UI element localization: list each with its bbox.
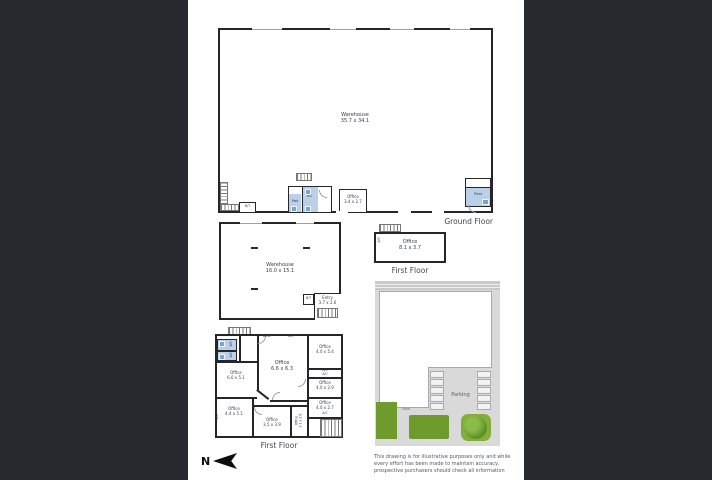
roller-door-line [296,223,314,224]
office-6-6-label: Office 6.6 x 6.3 [259,360,305,372]
toilet-fixture [305,206,311,212]
interior-wall [270,400,307,402]
interior-wall [215,361,257,363]
floorplan-image: Warehouse 35.7 x 34.1 B/T Pwd WC Office … [188,0,524,480]
warehouse-label: Warehouse 35.7 x 34.1 [300,112,410,124]
parking-bay [477,395,491,402]
column-mark [251,288,258,290]
door-gap [336,211,348,214]
powder-label: Pwd [289,200,301,204]
first-floor-label-left: First Floor [215,441,343,450]
parking-bay [430,387,444,394]
stairs [379,224,401,232]
office-dims: 4.0 x 5.4 [308,350,342,355]
parking-label: Parking [444,392,477,398]
column-mark [303,247,310,249]
wc-label: WC [302,195,317,199]
bt-label: B/T [303,297,314,301]
disclaimer-line: prospective purchasers should check all … [374,468,514,475]
interior-wall [239,334,241,362]
entry-label: Entry 3.7 x 2.6 [314,296,341,306]
stairs [320,419,342,437]
stairs [220,204,239,211]
wc-label: WC [230,340,234,348]
desk-label: Desk [258,335,276,339]
office-dims: 6.6 x 6.3 [259,366,305,372]
office-dims: 4.4 x 5.1 [216,412,252,417]
interior-wall [215,397,257,399]
parking-bay [430,379,444,386]
office-dims: 8.1 x 3.7 [380,245,440,251]
office-5-4-label: Office 4.0 x 5.4 [308,345,342,355]
ground-floor-label: Ground Floor [420,217,493,226]
entry-dims: 3.7 x 2.6 [314,301,341,306]
parking-bay [430,371,444,378]
office-dims: 3.4 x 2.7 [339,200,367,205]
ac-labels: A/C A/C [308,369,342,376]
office-dims: 3.5 x 3.9 [254,423,290,428]
tree [464,416,487,439]
roller-door-line [252,29,282,30]
disclaimer-line: This drawing is for illustrative purpose… [374,454,514,461]
door-gap [398,211,411,214]
parking-bay [477,403,491,410]
wc-divider-wall [217,350,237,352]
ac-label: A/C [308,373,342,377]
plant-fixture [482,199,489,205]
parking-bay [477,387,491,394]
crossover-line [375,287,500,288]
shed-label: Shed [398,408,414,412]
parking-bay [430,395,444,402]
roller-door-line [390,29,414,30]
office-gf-label: Office 3.4 x 2.7 [339,195,367,205]
toilet-fixture [219,354,225,360]
office-4-4-label: Office 4.4 x 5.1 [216,407,252,417]
crossover-line [375,284,500,285]
parking-bay [477,371,491,378]
door-gap [432,211,444,214]
stairs [317,308,338,318]
office-dims: 6.0 x 5.1 [217,376,255,381]
parking-bay [477,379,491,386]
north-label: N [201,455,210,468]
ac-label: A/C [284,335,298,339]
letterbox-right [524,0,712,480]
garden-bed [376,402,397,439]
site-plan: Parking Shed [375,281,500,446]
mid-warehouse-label: Warehouse 16.0 x 15.1 [244,262,316,274]
office-6-0-label: Office 6.0 x 5.1 [217,371,255,381]
office-3-5-label: Office 3.5 x 3.9 [254,418,290,428]
bt-label: B/T [239,205,256,209]
roller-door-line [240,223,262,224]
column-mark [251,247,258,249]
crossover-strip [375,281,500,290]
first-floor-office-label: Office 8.1 x 3.7 [380,239,440,251]
floorplan-viewer: Warehouse 35.7 x 34.1 B/T Pwd WC Office … [0,0,712,480]
first-floor-label-right: First Floor [374,266,446,275]
plant-label: Plant [465,193,491,197]
toilet-fixture [219,341,225,347]
basin-fixture [305,189,311,195]
letterbox-left [0,0,188,480]
office-2-7-label: Office 4.0 x 2.7 [308,401,342,411]
office-3-1-label: Office 3.1 x 2.6 [295,408,302,434]
roller-door-line [450,29,470,30]
office-dims: 3.1 x 2.6 [299,408,303,434]
stairs [220,182,228,205]
office-dims: 4.0 x 2.9 [308,386,342,391]
office-2-9-label: Office 4.0 x 2.9 [308,381,342,391]
disclaimer-text: This drawing is for illustrative purpose… [374,454,514,475]
wc-label: WC [230,351,234,359]
interior-wall [290,405,292,438]
ac-label: A/C [308,412,342,416]
parking-bay [430,403,444,410]
stairs [296,173,312,181]
warehouse-dims: 35.7 x 34.1 [300,118,410,124]
interior-wall [307,377,343,379]
disclaimer-line: every effort has been made to maintain a… [374,461,514,468]
toilet-fixture [291,206,297,212]
office-dims: 4.0 x 2.7 [308,406,342,411]
roller-door-line [330,29,356,30]
interior-wall [307,397,343,399]
warehouse-dims: 16.0 x 15.1 [244,268,316,274]
garden-bed [409,415,449,439]
ac-label: A/C [216,412,220,422]
building-footprint [379,291,492,368]
